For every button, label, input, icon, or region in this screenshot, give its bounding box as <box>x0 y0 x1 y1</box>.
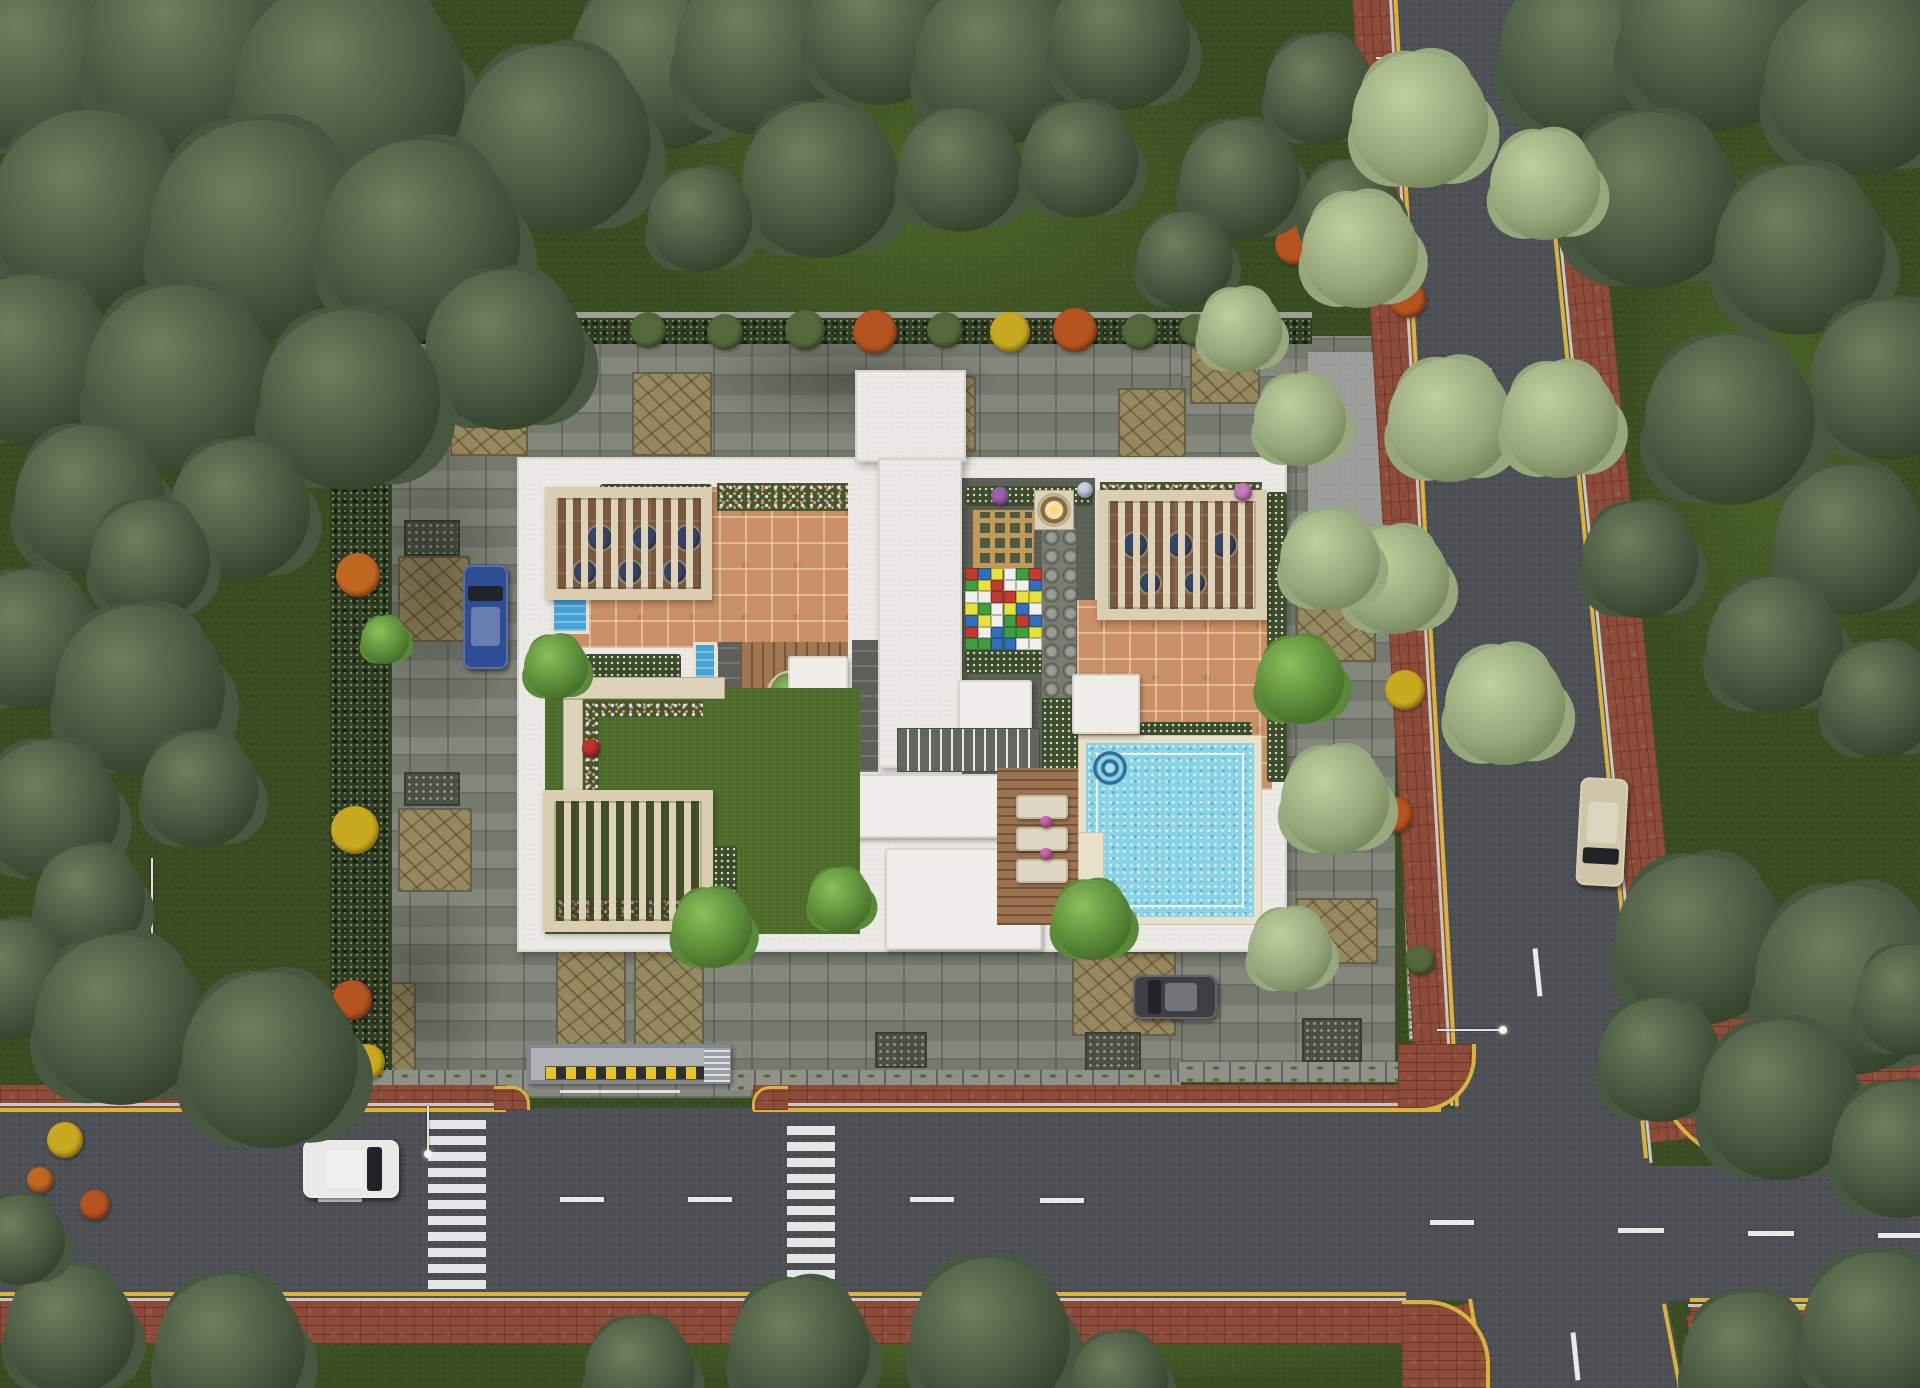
game-mat-cell <box>1029 591 1042 603</box>
lane-dash <box>560 1197 604 1202</box>
flower-bush <box>336 553 380 597</box>
game-mat-cell <box>1029 603 1042 615</box>
tree <box>1388 358 1512 482</box>
flower-bush <box>1385 670 1425 710</box>
tree <box>1281 746 1389 854</box>
game-mat-cell <box>991 627 1004 639</box>
tree <box>1502 362 1618 478</box>
game-mat-cell <box>1029 627 1042 639</box>
tree <box>1352 52 1488 188</box>
flower-strip <box>599 701 703 717</box>
lounger-cream <box>1016 795 1068 819</box>
game-mat-cell <box>1016 627 1029 639</box>
car-windshield <box>1582 847 1619 865</box>
game-mat-cell <box>1004 580 1017 592</box>
tree <box>1248 908 1332 992</box>
shrub <box>785 310 825 350</box>
flower-box <box>965 650 1043 674</box>
game-mat-cell <box>978 568 991 580</box>
grass-grid-block <box>875 1032 927 1068</box>
lamp-pole <box>1437 1029 1503 1031</box>
shrub <box>630 312 666 348</box>
game-mat-cell <box>991 638 1004 650</box>
lane-dash <box>910 1197 954 1202</box>
tree <box>1198 288 1282 372</box>
car-roof <box>1165 983 1197 1011</box>
car-champagne-driving <box>1575 777 1629 887</box>
tree <box>1445 645 1565 765</box>
tree <box>425 270 585 430</box>
flower-bush <box>27 1167 53 1193</box>
villa-roof-north-block <box>855 370 966 462</box>
game-mat-cell <box>1029 638 1042 650</box>
tree <box>808 868 872 932</box>
flower-box <box>1267 492 1287 782</box>
game-mat-cell <box>1029 615 1042 627</box>
car-blue-parked <box>463 565 508 669</box>
tree <box>1490 130 1600 240</box>
pergola-nw-frame <box>545 487 712 600</box>
car-windshield <box>1148 980 1161 1013</box>
roof-walkway-strip <box>878 458 962 768</box>
car-dark-parked <box>1133 975 1217 1019</box>
game-mat-cell <box>991 603 1004 615</box>
game-mat-cell <box>1004 615 1017 627</box>
crosswalk <box>428 1120 486 1292</box>
tree <box>742 102 898 258</box>
tree <box>1582 502 1698 618</box>
game-mat-cell <box>991 591 1004 603</box>
tree <box>1254 374 1346 466</box>
lane-dash <box>1618 1228 1664 1233</box>
roof-slab <box>958 680 1032 732</box>
pebble-path <box>1042 528 1076 698</box>
wood-trellis <box>973 510 1034 570</box>
tree <box>1022 102 1138 218</box>
lane-dash <box>688 1197 732 1202</box>
lamp-head <box>424 1150 432 1158</box>
grass-grid-block <box>1302 1018 1362 1062</box>
game-mat-cell <box>1029 580 1042 592</box>
game-mat-cell <box>991 580 1004 592</box>
stairs <box>897 728 1040 772</box>
flower-bush <box>990 312 1030 352</box>
game-mat-cell <box>978 603 991 615</box>
driveway-corner <box>752 1086 788 1110</box>
tree <box>648 168 752 272</box>
tree <box>1645 335 1815 505</box>
tree <box>898 108 1022 232</box>
curb <box>753 1103 1443 1106</box>
planter-wall <box>563 677 725 699</box>
game-mat-cell <box>991 568 1004 580</box>
game-mat-cell <box>1004 603 1017 615</box>
tree <box>524 635 588 699</box>
game-mat-cell <box>1004 591 1017 603</box>
lounger-cream <box>1016 827 1068 851</box>
shrub <box>1405 945 1435 975</box>
flower-bush <box>1077 482 1093 498</box>
car-roof <box>471 607 500 647</box>
game-mat-cell <box>1016 603 1029 615</box>
game-mat-cell <box>978 638 991 650</box>
lamp-head <box>1499 1026 1507 1034</box>
lounger-cream <box>1016 859 1068 883</box>
flower-box <box>717 483 848 511</box>
tree <box>1256 636 1344 724</box>
tree <box>90 500 210 620</box>
grass-grid-block <box>1085 1032 1141 1072</box>
game-mat-cell <box>1004 627 1017 639</box>
car-roof <box>1586 801 1619 844</box>
game-mat-cell <box>1004 638 1017 650</box>
lamp-pole <box>427 1106 429 1154</box>
lane-dash <box>1430 1220 1474 1225</box>
pergola-ne-frame <box>1097 490 1267 620</box>
flower-bush <box>991 487 1009 505</box>
game-mat-cell <box>965 615 978 627</box>
game-mat-cell <box>978 580 991 592</box>
gate-grate <box>704 1048 730 1082</box>
pool-pavilion-roof <box>1072 674 1140 734</box>
lane-dash <box>1878 1233 1920 1238</box>
tree <box>361 616 409 664</box>
flower-bush <box>80 1190 110 1220</box>
flagstone-patch <box>1118 388 1186 458</box>
crosswalk <box>787 1126 835 1294</box>
round-table <box>1037 493 1071 527</box>
game-mat-cell <box>1016 638 1029 650</box>
yellow-edge-line <box>753 1108 1441 1112</box>
flower-bush <box>1040 816 1052 828</box>
game-mat-cell <box>965 580 978 592</box>
game-mat-cell <box>978 627 991 639</box>
game-mat-cell <box>1029 568 1042 580</box>
flower-bush <box>1234 483 1252 501</box>
planter-row <box>1177 1062 1427 1082</box>
tree <box>1280 510 1380 610</box>
game-mat-cell <box>1016 568 1029 580</box>
car-white-driving <box>303 1140 399 1198</box>
lane-dash <box>1748 1231 1794 1236</box>
grass-grid-block <box>404 772 460 806</box>
lane-dash <box>1040 1198 1084 1203</box>
game-mat-cell <box>1016 591 1029 603</box>
game-mat-cell <box>965 591 978 603</box>
shrub <box>927 312 963 348</box>
flower-bush <box>853 310 897 354</box>
tree <box>142 732 258 848</box>
tree <box>182 972 358 1148</box>
tree <box>1052 880 1132 960</box>
jacuzzi <box>1093 751 1127 785</box>
flower-bush <box>1040 848 1052 860</box>
speed-bump <box>545 1066 707 1080</box>
game-mat-cell <box>965 568 978 580</box>
shrub <box>1122 314 1158 350</box>
game-mat-cell <box>991 615 1004 627</box>
game-mat-cell <box>965 638 978 650</box>
pavement-marking <box>560 1090 680 1093</box>
game-mat-cell <box>965 603 978 615</box>
game-mat-cell <box>1016 615 1029 627</box>
tree <box>672 888 752 968</box>
flower-pot <box>582 739 600 757</box>
car-roof <box>326 1150 362 1187</box>
game-mat-cell <box>1004 568 1017 580</box>
game-mat-cell <box>1016 580 1029 592</box>
flower-bush <box>331 806 379 854</box>
flower-bush <box>47 1122 83 1158</box>
game-mat-cell <box>978 591 991 603</box>
tree <box>1302 192 1418 308</box>
tree <box>35 935 205 1105</box>
shrub <box>707 314 743 350</box>
car-windshield <box>367 1147 381 1191</box>
game-mat-cell <box>978 615 991 627</box>
flower-bush <box>1053 308 1097 352</box>
game-mat <box>965 568 1042 650</box>
game-mat-cell <box>965 627 978 639</box>
scene-canvas <box>0 0 1920 1388</box>
car-windshield <box>468 586 502 602</box>
